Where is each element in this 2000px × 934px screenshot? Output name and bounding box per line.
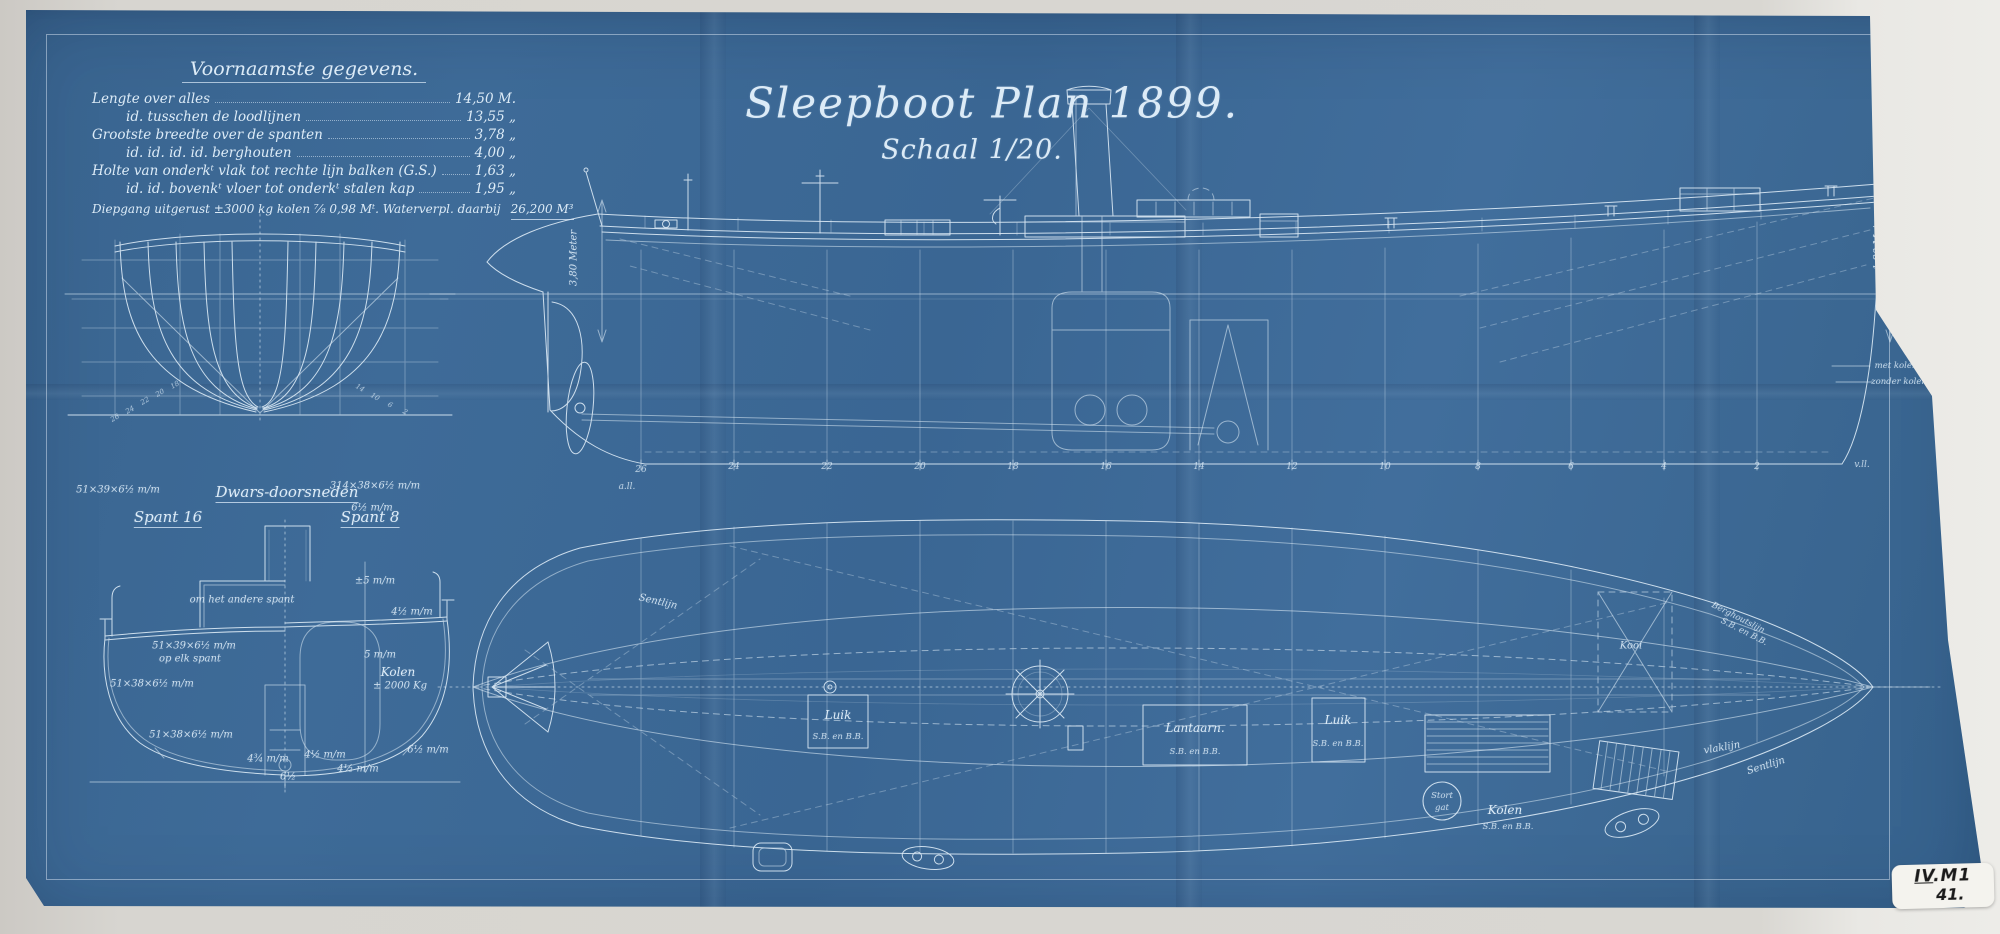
lantaarn-sub: S.B. en B.B. xyxy=(1170,747,1221,757)
grating-hatch xyxy=(1425,715,1550,772)
companion-stairs xyxy=(1593,741,1679,800)
annotation: 5 m/m xyxy=(364,650,396,661)
luik-1-label: Luik xyxy=(825,708,852,722)
lantaarn-label: Lantaarn. xyxy=(1165,721,1224,735)
blueprint-sheet: Sleepboot Plan 1899. Schaal 1/20. Voorna… xyxy=(0,0,2000,934)
body-plan-references xyxy=(65,214,455,422)
towing-bitt-aft xyxy=(901,843,956,872)
cross-baseline xyxy=(90,776,460,788)
waterline-label-light: zonder kolen xyxy=(1871,377,1927,387)
annotation: 51×38×6½ m/m xyxy=(110,679,194,690)
annotation: 4½ m/m xyxy=(391,607,433,618)
kolen-sub: S.B. en B.B. xyxy=(1483,822,1534,832)
annotation: 4¾ m/m xyxy=(247,754,289,765)
annotation: 314×38×6½ m/m xyxy=(330,481,420,492)
table-title: Voornaamste gegevens. xyxy=(92,58,516,80)
annotation: 4½ m/m xyxy=(304,750,346,761)
waterline-label-loaded: met kolen xyxy=(1875,361,1918,371)
archive-sticker: IV.M1 41. xyxy=(1891,863,1994,910)
annotation: 6½ m/m xyxy=(351,503,393,514)
rudder-tiller-fan xyxy=(488,642,555,732)
kooi-label: Kooi xyxy=(1620,641,1642,652)
annotation: 4½ m/m xyxy=(337,764,379,775)
annotation: 51×38×6½ m/m xyxy=(149,730,233,741)
stort-gat-label-2: gat xyxy=(1435,803,1449,813)
stort-gat-label: Stort xyxy=(1431,791,1453,801)
archive-number: 41. xyxy=(1892,885,1994,906)
dimension-right: 1,80 Meter xyxy=(1873,214,1884,270)
annotation: ± 2000 Kg xyxy=(373,681,427,692)
annotation: 51×39×6½ m/m xyxy=(152,641,236,652)
towing-bitt-fore xyxy=(1602,803,1663,843)
dimension-left: 3,80 Meter xyxy=(569,230,580,286)
hatch-luik-2 xyxy=(1312,698,1365,762)
annotation: ±5 m/m xyxy=(355,576,395,587)
annotation: op elk spant xyxy=(159,654,221,665)
luik-2-label: Luik xyxy=(1325,713,1352,727)
kolen-label: Kolen xyxy=(1488,803,1523,817)
blueprint-scan: { "colors": {"paper":"#d9d7d2","blueprin… xyxy=(0,0,2000,934)
archive-code: IV.M1 xyxy=(1891,865,1993,888)
annotation: om het andere spant xyxy=(190,595,295,606)
coal-pour-hole xyxy=(1423,782,1461,820)
luik-1-sub: S.B. en B.B. xyxy=(813,732,864,742)
berth-kooi xyxy=(1598,592,1672,712)
annotation: 6½ xyxy=(280,772,296,783)
luik-2-sub: S.B. en B.B. xyxy=(1313,739,1364,749)
steering-wheel xyxy=(1006,660,1074,728)
deck-plan-drawing xyxy=(430,400,1950,880)
deck-structures xyxy=(584,86,1837,237)
body-plan-drawing xyxy=(60,200,460,445)
annotation: Kolen xyxy=(381,665,416,679)
annotation: 51×39×6½ m/m xyxy=(76,485,160,496)
